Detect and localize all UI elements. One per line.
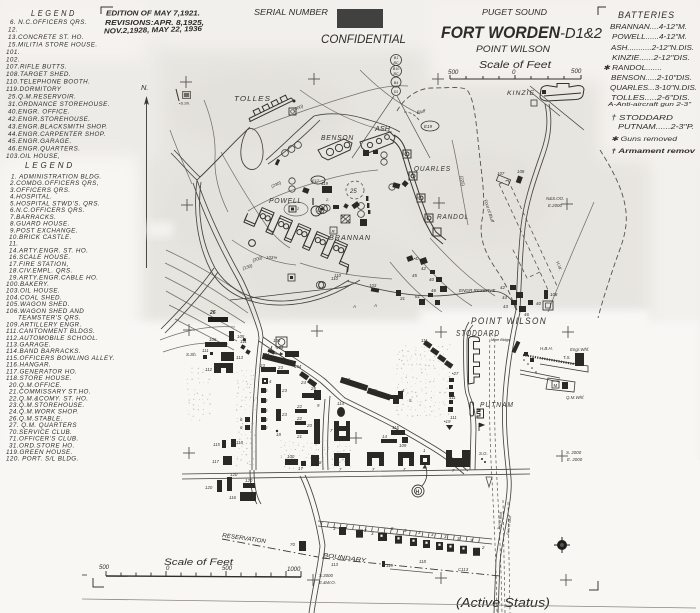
svg-text:116: 116 xyxy=(229,495,237,500)
svg-text:23: 23 xyxy=(281,412,287,417)
svg-text:43: 43 xyxy=(503,304,508,309)
svg-text:BENSON: BENSON xyxy=(321,133,354,142)
svg-text:107.RIFLE BUTTS.: 107.RIFLE BUTTS. xyxy=(6,64,67,71)
svg-text:12.: 12. xyxy=(8,26,18,33)
svg-text:46: 46 xyxy=(431,288,436,293)
svg-text:TOLLES.....2-6"DIS.: TOLLES.....2-6"DIS. xyxy=(611,95,690,102)
svg-text:A-Anti-aircraft gun 2-3": A-Anti-aircraft gun 2-3" xyxy=(607,102,693,108)
svg-text:110.TELEPHONE BOOTH.: 110.TELEPHONE BOOTH. xyxy=(6,79,90,86)
svg-text:1000: 1000 xyxy=(287,567,301,573)
svg-text:15.MILITIA STORE HOUSE.: 15.MILITIA STORE HOUSE. xyxy=(8,41,98,48)
svg-text:500: 500 xyxy=(448,69,459,76)
svg-text:Scale of Feet: Scale of Feet xyxy=(479,60,552,71)
svg-text:† Armament remov: † Armament remov xyxy=(611,148,695,155)
svg-text:111: 111 xyxy=(450,415,457,420)
svg-text:QUARLES...3-10"N.DIS.: QUARLES...3-10"N.DIS. xyxy=(610,85,697,92)
svg-text:23: 23 xyxy=(344,377,350,382)
svg-text:108: 108 xyxy=(550,292,558,297)
svg-text:101.: 101. xyxy=(6,49,20,56)
svg-text:23: 23 xyxy=(277,365,283,370)
svg-text:E17: E17 xyxy=(312,178,320,183)
svg-text:-D1&2: -D1&2 xyxy=(560,26,602,42)
svg-text:120. PORT. S/L BLDG.: 120. PORT. S/L BLDG. xyxy=(6,456,79,463)
svg-text:POINT WILSON: POINT WILSON xyxy=(471,316,547,326)
svg-text:119: 119 xyxy=(386,563,394,568)
svg-text:S. 2000: S. 2000 xyxy=(566,450,582,455)
svg-text:61: 61 xyxy=(415,294,420,299)
svg-text:42: 42 xyxy=(421,266,426,271)
svg-text:40: 40 xyxy=(536,301,541,306)
svg-text:44: 44 xyxy=(502,295,507,300)
svg-text:RANDOL: RANDOL xyxy=(437,212,469,221)
svg-text:PUGET SOUND: PUGET SOUND xyxy=(482,8,547,17)
svg-text:B1: B1 xyxy=(394,56,398,60)
svg-text:LEGEND: LEGEND xyxy=(31,8,77,18)
svg-text:110: 110 xyxy=(331,276,339,281)
svg-text:118: 118 xyxy=(419,559,427,564)
svg-text:H: H xyxy=(416,490,420,496)
svg-text:2.: 2. xyxy=(325,197,329,202)
svg-text:42.ENGR.STOREHOUSE.: 42.ENGR.STOREHOUSE. xyxy=(8,116,90,123)
svg-text:BC: BC xyxy=(394,61,399,65)
svg-text:114: 114 xyxy=(337,401,345,406)
svg-text:104: 104 xyxy=(262,352,270,357)
svg-text:40.ENGR. OFFICE.: 40.ENGR. OFFICE. xyxy=(8,108,70,115)
svg-text:112: 112 xyxy=(205,367,213,372)
svg-text:N.: N. xyxy=(141,83,149,92)
svg-text:BATTERIES: BATTERIES xyxy=(618,10,675,21)
svg-text:26: 26 xyxy=(209,310,216,316)
svg-text:113: 113 xyxy=(236,355,244,360)
svg-text:LEGEND: LEGEND xyxy=(25,160,75,170)
svg-text:45.ENGR.GARAGE.: 45.ENGR.GARAGE. xyxy=(8,138,72,145)
svg-text:•27: •27 xyxy=(452,371,459,376)
svg-text:E19: E19 xyxy=(424,124,433,129)
svg-text:EDITION OF MAY 7,1921.: EDITION OF MAY 7,1921. xyxy=(106,9,200,18)
svg-text:T.S.: T.S. xyxy=(563,355,571,360)
svg-text:BRANNAN....4-12"M.: BRANNAN....4-12"M. xyxy=(610,24,687,31)
svg-text:2: 2 xyxy=(481,545,485,550)
svg-text:TOLLES: TOLLES xyxy=(234,94,271,103)
svg-text:ASH: ASH xyxy=(374,124,391,133)
svg-text:ENGR RESERVE: ENGR RESERVE xyxy=(459,288,496,293)
svg-text:17: 17 xyxy=(298,466,303,471)
svg-text:BRANNAN: BRANNAN xyxy=(329,233,371,242)
svg-text:STODDARD: STODDARD xyxy=(456,329,500,338)
svg-text:A: A xyxy=(373,303,377,308)
svg-text:109: 109 xyxy=(399,443,407,448)
svg-text:•S.Sh.: •S.Sh. xyxy=(179,101,190,106)
svg-text:Mine Bldgs.: Mine Bldgs. xyxy=(491,338,511,342)
svg-text:103: 103 xyxy=(369,283,377,288)
svg-text:KINZIE: KINZIE xyxy=(507,90,535,97)
svg-text:44.ENGR.CARPENTER SHOP.: 44.ENGR.CARPENTER SHOP. xyxy=(8,131,106,138)
svg-text:21: 21 xyxy=(296,434,302,439)
svg-text:102.: 102. xyxy=(6,56,20,63)
svg-text:120: 120 xyxy=(245,478,253,483)
svg-text:H.B.H.: H.B.H. xyxy=(540,346,553,351)
svg-text:PUTNAM: PUTNAM xyxy=(480,400,514,409)
svg-text:71: 71 xyxy=(372,388,377,393)
svg-text:118: 118 xyxy=(236,440,244,445)
svg-text:E.&W.O.: E.&W.O. xyxy=(319,580,336,585)
svg-text:S.G.: S.G. xyxy=(479,451,488,456)
svg-text:ASH...........2-12"N.DIS.: ASH...........2-12"N.DIS. xyxy=(610,45,694,52)
svg-text:6. N.C.OFFICERS QRS.: 6. N.C.OFFICERS QRS. xyxy=(10,19,87,26)
svg-text:23: 23 xyxy=(281,388,287,393)
svg-text:POWELL......4-12"M.: POWELL......4-12"M. xyxy=(612,34,687,41)
svg-text:✱ Guns removed: ✱ Guns removed xyxy=(611,136,677,143)
svg-text:22: 22 xyxy=(296,416,302,421)
svg-text:108: 108 xyxy=(517,169,525,174)
svg-text:(Active Status): (Active Status) xyxy=(456,595,550,610)
svg-text:115: 115 xyxy=(392,425,400,430)
svg-text:22: 22 xyxy=(296,404,302,409)
svg-text:111: 111 xyxy=(421,338,428,343)
svg-text:BENSON.....2-10"DIS.: BENSON.....2-10"DIS. xyxy=(611,75,692,82)
svg-text:70: 70 xyxy=(290,542,295,547)
svg-text:500: 500 xyxy=(571,68,582,75)
svg-text:117: 117 xyxy=(212,459,220,464)
svg-text:100: 100 xyxy=(287,454,295,459)
svg-text:QUARLES: QUARLES xyxy=(414,164,451,173)
svg-text:20: 20 xyxy=(306,423,312,428)
svg-text:500: 500 xyxy=(99,565,110,571)
svg-text:B4: B4 xyxy=(394,81,398,85)
svg-text:C113: C113 xyxy=(458,567,469,572)
svg-text:25: 25 xyxy=(349,189,357,195)
svg-text:S.3000: S.3000 xyxy=(319,573,333,578)
svg-text:S.Sh.: S.Sh. xyxy=(186,352,197,357)
svg-text:119.DORMITORY: 119.DORMITORY xyxy=(6,86,62,93)
svg-text:5.: 5. xyxy=(409,398,413,403)
svg-text:POINT WILSON: POINT WILSON xyxy=(476,44,551,54)
svg-text:164: 164 xyxy=(294,364,302,369)
svg-text:111: 111 xyxy=(449,395,456,400)
svg-text:•D: •D xyxy=(414,256,420,261)
svg-text:CONFIDENTIAL: CONFIDENTIAL xyxy=(321,34,406,46)
svg-text:KINZIE......2-12"DIS.: KINZIE......2-12"DIS. xyxy=(612,55,690,62)
svg-text:120: 120 xyxy=(230,472,238,477)
svg-text:31.ORDNANCE STOREHOUSE.: 31.ORDNANCE STOREHOUSE. xyxy=(8,101,110,108)
svg-text:46.ENGR.QUARTERS.: 46.ENGR.QUARTERS. xyxy=(8,146,80,153)
svg-text:0: 0 xyxy=(512,69,516,76)
svg-text:PUTNAM......2-3"P.: PUTNAM......2-3"P. xyxy=(618,124,694,131)
svg-text:108.TARGET SHED.: 108.TARGET SHED. xyxy=(6,71,71,78)
svg-text:Q.M.Whf.: Q.M.Whf. xyxy=(566,395,585,400)
svg-text:B10: B10 xyxy=(393,67,399,71)
svg-text:500: 500 xyxy=(222,566,233,572)
svg-text:D1: D1 xyxy=(394,90,399,94)
svg-text:E. 2000: E. 2000 xyxy=(567,457,583,462)
svg-text:SERIAL NUMBER: SERIAL NUMBER xyxy=(254,8,328,17)
svg-text:46: 46 xyxy=(524,312,529,317)
svg-text:103⅛: 103⅛ xyxy=(266,255,277,260)
svg-text:E.2000: E.2000 xyxy=(548,203,562,208)
svg-text:A: A xyxy=(352,304,356,309)
svg-text:106: 106 xyxy=(209,337,217,342)
svg-text:† STODDARD: † STODDARD xyxy=(611,115,673,122)
svg-text:✱ RANDOL.......: ✱ RANDOL....... xyxy=(603,64,662,72)
svg-text:43.ENGR.BLACKSMITH SHOP.: 43.ENGR.BLACKSMITH SHOP. xyxy=(8,123,108,130)
svg-text:BC: BC xyxy=(394,72,399,76)
svg-text:31: 31 xyxy=(400,296,405,301)
svg-text:40: 40 xyxy=(429,277,434,282)
svg-text:111: 111 xyxy=(202,348,209,353)
svg-text:120: 120 xyxy=(205,485,213,490)
svg-text:113: 113 xyxy=(331,562,339,567)
svg-text:42: 42 xyxy=(500,285,505,290)
svg-text:23: 23 xyxy=(259,363,265,368)
svg-text:POWELL: POWELL xyxy=(269,196,302,205)
svg-text:18: 18 xyxy=(276,432,281,437)
svg-text:45: 45 xyxy=(412,273,417,278)
svg-text:24: 24 xyxy=(300,380,306,385)
svg-text:25.Q.M.RESERVOIR.: 25.Q.M.RESERVOIR. xyxy=(7,94,76,101)
svg-text:N&S.OO.: N&S.OO. xyxy=(546,196,564,201)
svg-text:14: 14 xyxy=(382,434,387,439)
svg-text:115: 115 xyxy=(213,442,221,447)
svg-text:M: M xyxy=(554,383,558,388)
svg-text:Engr.Whf.: Engr.Whf. xyxy=(570,347,589,352)
svg-text:FORT WORDEN: FORT WORDEN xyxy=(441,24,561,42)
svg-text:13.CONCRETE ST. HO.: 13.CONCRETE ST. HO. xyxy=(8,34,84,41)
svg-text:103: 103 xyxy=(276,345,284,350)
